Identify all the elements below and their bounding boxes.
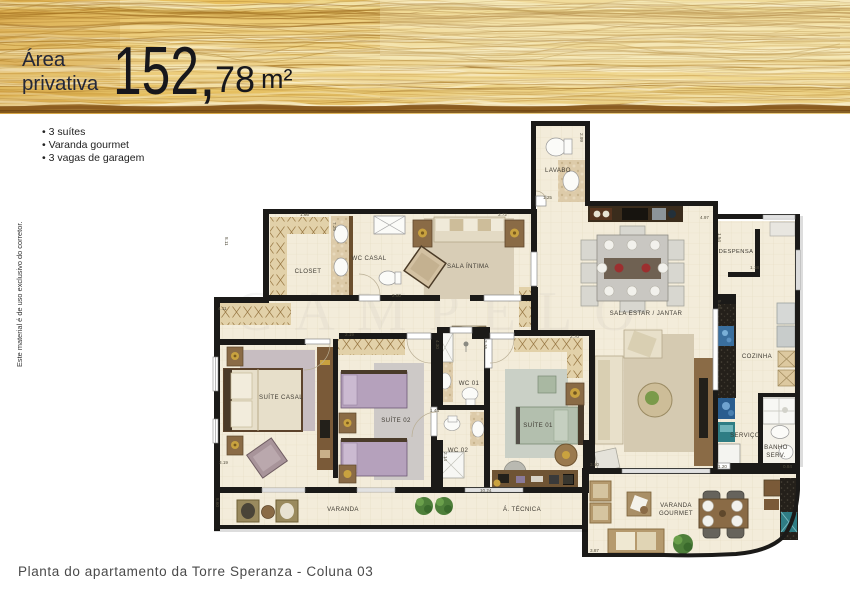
svg-text:8.11: 8.11: [224, 237, 229, 246]
svg-text:VARANDA: VARANDA: [327, 506, 359, 513]
svg-text:SERV.: SERV.: [766, 452, 786, 459]
svg-text:152: 152: [113, 33, 199, 109]
svg-text:0.84: 0.84: [783, 464, 792, 469]
svg-text:2.14: 2.14: [443, 452, 448, 461]
svg-text:10.24: 10.24: [480, 488, 492, 493]
svg-text:2.16: 2.16: [483, 340, 488, 349]
svg-text:Este material é de uso exclusi: Este material é de uso exclusivo do corr…: [15, 222, 24, 367]
svg-text:WC CASAL: WC CASAL: [351, 255, 386, 262]
svg-text:1.20: 1.20: [718, 464, 727, 469]
svg-text:2.99: 2.99: [579, 133, 584, 142]
svg-text:privativa: privativa: [22, 72, 99, 95]
svg-text:2.00: 2.00: [392, 293, 401, 298]
svg-text:4.11: 4.11: [218, 306, 227, 311]
svg-text:3.72: 3.72: [498, 212, 507, 217]
svg-text:CLOSET: CLOSET: [295, 268, 322, 275]
svg-text:5.48: 5.48: [717, 300, 722, 309]
svg-text:3.50: 3.50: [590, 462, 599, 467]
svg-text:m²: m²: [261, 64, 292, 94]
svg-text:• 3 vagas de garagem: • 3 vagas de garagem: [42, 152, 145, 164]
svg-text:Á. TÉCNICA: Á. TÉCNICA: [503, 506, 542, 513]
svg-text:1.44: 1.44: [430, 408, 439, 413]
svg-text:8.60: 8.60: [215, 498, 220, 507]
svg-text:Área: Área: [22, 48, 66, 71]
svg-text:SALA ÍNTIMA: SALA ÍNTIMA: [447, 263, 490, 270]
svg-text:1.54: 1.54: [717, 233, 722, 242]
svg-text:3.19: 3.19: [219, 460, 228, 465]
svg-text:1.25: 1.25: [543, 195, 552, 200]
svg-text:SUÍTE 01: SUÍTE 01: [523, 422, 553, 429]
svg-text:SERVIÇO: SERVIÇO: [730, 433, 760, 439]
svg-text:2.19: 2.19: [345, 332, 354, 337]
svg-text:,: ,: [199, 42, 216, 109]
svg-text:1.66: 1.66: [300, 212, 309, 217]
svg-text:WC 01: WC 01: [459, 380, 480, 387]
svg-text:4.30: 4.30: [435, 340, 440, 349]
svg-text:VARANDA: VARANDA: [660, 502, 692, 509]
svg-text:SUÍTE CASAL: SUÍTE CASAL: [259, 394, 303, 401]
svg-text:WC 02: WC 02: [448, 447, 469, 454]
svg-text:LAVABO: LAVABO: [545, 167, 571, 174]
svg-text:2.70: 2.70: [570, 334, 579, 339]
svg-text:GOURMET: GOURMET: [659, 510, 693, 517]
svg-text:SUÍTE 02: SUÍTE 02: [381, 417, 411, 424]
svg-text:78: 78: [215, 59, 255, 100]
svg-text:SALA ESTAR / JANTAR: SALA ESTAR / JANTAR: [610, 310, 683, 317]
svg-text:DESPENSA: DESPENSA: [719, 249, 754, 255]
svg-text:COZINHA: COZINHA: [742, 353, 773, 360]
svg-text:7.25: 7.25: [332, 222, 337, 231]
svg-text:• Varanda gourmet: • Varanda gourmet: [42, 139, 129, 151]
svg-text:3.87: 3.87: [590, 548, 599, 553]
svg-text:1.18: 1.18: [750, 265, 759, 270]
svg-text:Planta do apartamento da Torre: Planta do apartamento da Torre Speranza …: [18, 564, 373, 579]
svg-text:BANHO: BANHO: [764, 444, 788, 451]
svg-text:4.97: 4.97: [700, 215, 709, 220]
svg-text:• 3 suítes: • 3 suítes: [42, 126, 85, 138]
